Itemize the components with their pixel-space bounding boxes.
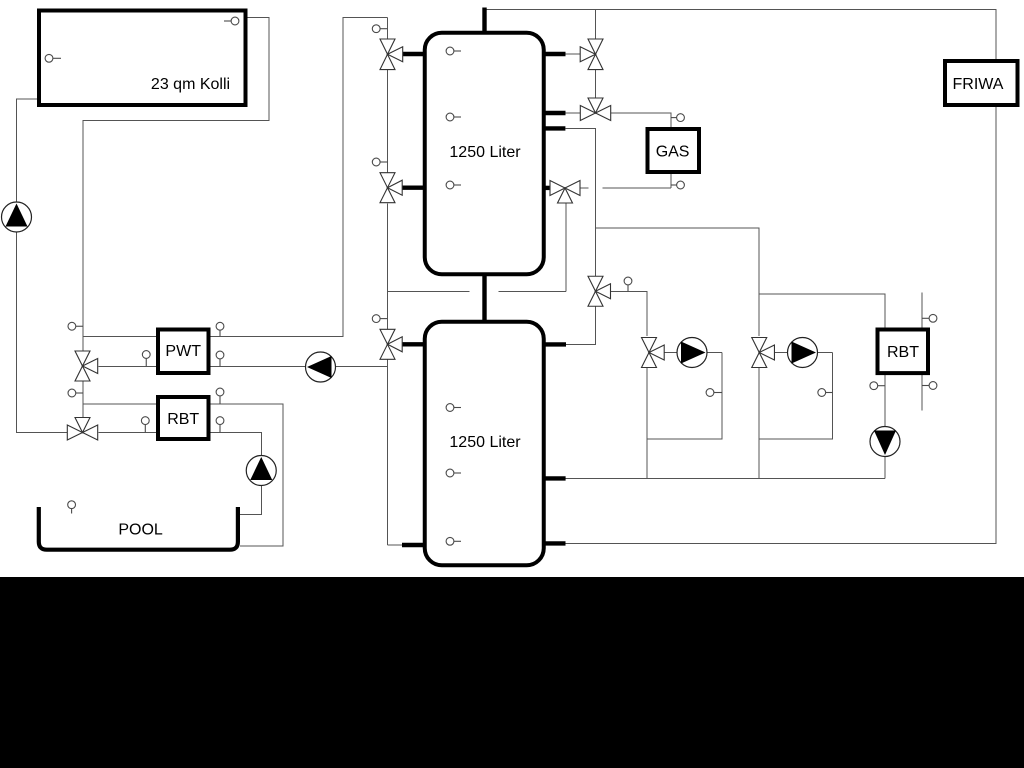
svg-text:23 qm Kolli: 23 qm Kolli — [151, 76, 230, 93]
svg-text:RBT: RBT — [887, 344, 919, 361]
svg-text:GAS: GAS — [656, 143, 690, 160]
svg-text:POOL: POOL — [118, 522, 163, 539]
svg-text:PWT: PWT — [165, 343, 201, 360]
svg-text:1250 Liter: 1250 Liter — [449, 434, 521, 451]
svg-text:RBT: RBT — [167, 411, 199, 428]
svg-text:1250 Liter: 1250 Liter — [449, 144, 521, 161]
svg-text:FRIWA: FRIWA — [953, 76, 1004, 93]
